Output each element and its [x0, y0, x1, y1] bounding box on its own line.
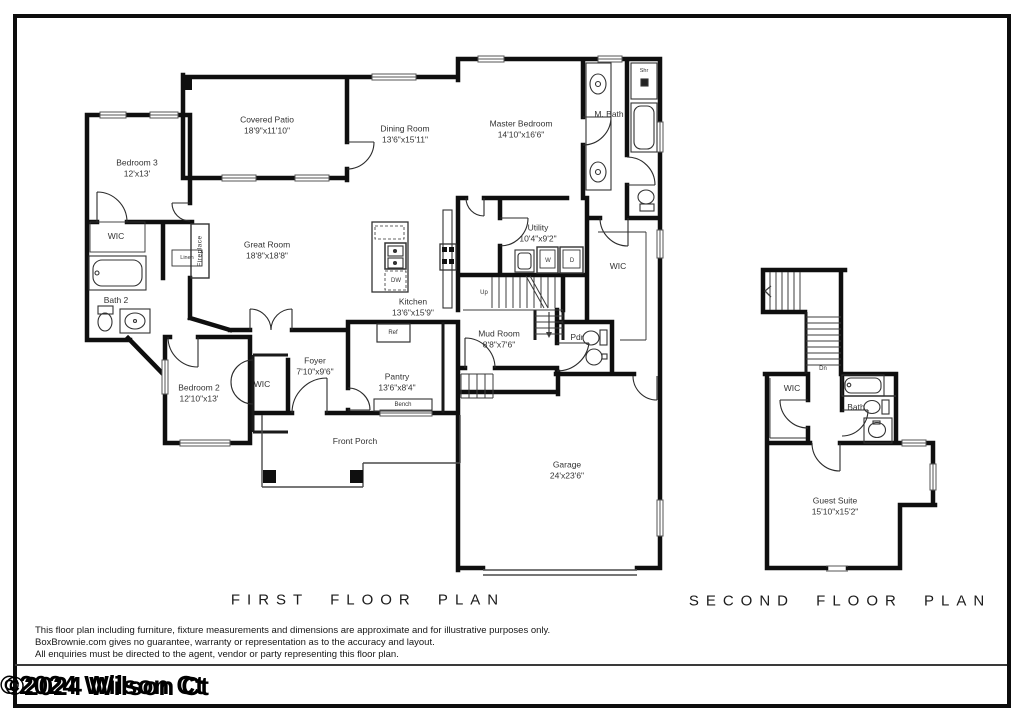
room-dims: 18'8"x18'8" — [244, 250, 290, 261]
room-label-pantry: Pantry 13'6"x8'4" — [378, 372, 415, 393]
label-dryer: D — [570, 258, 574, 264]
room-name: Mud Room — [478, 329, 520, 340]
first-floor-plan-title: FIRST FLOOR PLAN — [231, 592, 505, 609]
room-name: Covered Patio — [240, 115, 294, 126]
label-refrigerator: Ref — [388, 330, 397, 336]
label-stairs-down: Dn — [819, 366, 827, 372]
room-dims: 8'8"x7'6" — [478, 339, 520, 350]
label-washer: W — [545, 258, 551, 264]
room-label-great-room: Great Room 18'8"x18'8" — [244, 240, 290, 261]
room-dims: 18'9"x11'10" — [240, 125, 294, 136]
room-label-bedroom-3: Bedroom 3 12'x13' — [116, 158, 158, 179]
watermark: ©2024 Wilson Ct ©2024 Wilson Ct — [0, 670, 260, 704]
first-floor-walls — [87, 59, 660, 570]
second-floor-plan-title: SECOND FLOOR PLAN — [689, 593, 991, 610]
label-master-bath: M. Bath — [594, 109, 623, 119]
room-label-utility: Utility 10'4"x9'2" — [519, 223, 556, 244]
footer-divider-line — [15, 664, 1007, 666]
porch-outline — [262, 415, 637, 575]
label-stairs-up: Up — [480, 290, 488, 296]
room-dims: 7'10"x9'6" — [296, 366, 333, 377]
room-label-covered-patio: Covered Patio 18'9"x11'10" — [240, 115, 294, 136]
room-name: Dining Room — [380, 124, 429, 135]
room-name: Kitchen — [392, 297, 434, 308]
room-dims: 13'6"x15'9" — [392, 307, 434, 318]
room-label-mud-room: Mud Room 8'8"x7'6" — [478, 329, 520, 350]
room-dims: 14'10"x16'6" — [490, 129, 553, 140]
label-fireplace: Fireplace — [197, 235, 204, 266]
room-name: Bedroom 3 — [116, 158, 158, 169]
room-dims: 12'x13' — [116, 168, 158, 179]
second-floor-walls — [763, 270, 935, 568]
label-wic-master: WIC — [610, 261, 627, 271]
disclaimer-line-3: All enquiries must be directed to the ag… — [35, 649, 399, 660]
room-name: Great Room — [244, 240, 290, 251]
room-name: Pantry — [378, 372, 415, 383]
label-bench: Bench — [394, 402, 411, 408]
room-label-foyer: Foyer 7'10"x9'6" — [296, 356, 333, 377]
room-label-dining-room: Dining Room 13'6"x15'11" — [380, 124, 429, 145]
room-label-guest-suite: Guest Suite 15'10"x15'2" — [812, 496, 859, 517]
room-dims: 10'4"x9'2" — [519, 233, 556, 244]
label-wic-bedroom3: WIC — [108, 231, 125, 241]
room-name: Bedroom 2 — [178, 383, 220, 394]
label-powder-room: Pdr — [570, 332, 583, 342]
label-dishwasher: DW — [391, 278, 401, 284]
label-wic-bedroom2: WIC — [254, 379, 271, 389]
label-bath-second-floor: Bath — [847, 402, 865, 412]
second-floor-stairs — [765, 272, 841, 374]
floor-plan-page: Covered Patio 18'9"x11'10" Dining Room 1… — [0, 0, 1024, 724]
room-name: Foyer — [296, 356, 333, 367]
label-front-porch: Front Porch — [333, 436, 377, 446]
room-name: Utility — [519, 223, 556, 234]
room-label-garage: Garage 24'x23'6" — [550, 460, 584, 481]
room-dims: 13'6"x8'4" — [378, 382, 415, 393]
floor-plan-drawing — [0, 0, 1024, 724]
disclaimer-line-2: BoxBrownie.com gives no guarantee, warra… — [35, 637, 435, 648]
room-name: Guest Suite — [812, 496, 859, 507]
label-linen: Linen — [180, 255, 193, 261]
first-floor-fixtures — [89, 63, 657, 365]
room-name: Garage — [550, 460, 584, 471]
label-shower: Shr — [640, 68, 649, 74]
room-label-master-bedroom: Master Bedroom 14'10"x16'6" — [490, 119, 553, 140]
label-bath-2: Bath 2 — [104, 295, 129, 305]
room-name: Master Bedroom — [490, 119, 553, 130]
label-wic-second-floor: WIC — [784, 383, 801, 393]
watermark-text-layer: ©2024 Wilson Ct — [5, 671, 209, 702]
room-dims: 13'6"x15'11" — [380, 134, 429, 145]
disclaimer-line-1: This floor plan including furniture, fix… — [35, 625, 550, 636]
room-label-kitchen: Kitchen 13'6"x15'9" — [392, 297, 434, 318]
room-dims: 12'10"x13' — [178, 393, 220, 404]
room-dims: 24'x23'6" — [550, 470, 584, 481]
room-dims: 15'10"x15'2" — [812, 506, 859, 517]
patio-post — [181, 79, 192, 90]
room-label-bedroom-2: Bedroom 2 12'10"x13' — [178, 383, 220, 404]
